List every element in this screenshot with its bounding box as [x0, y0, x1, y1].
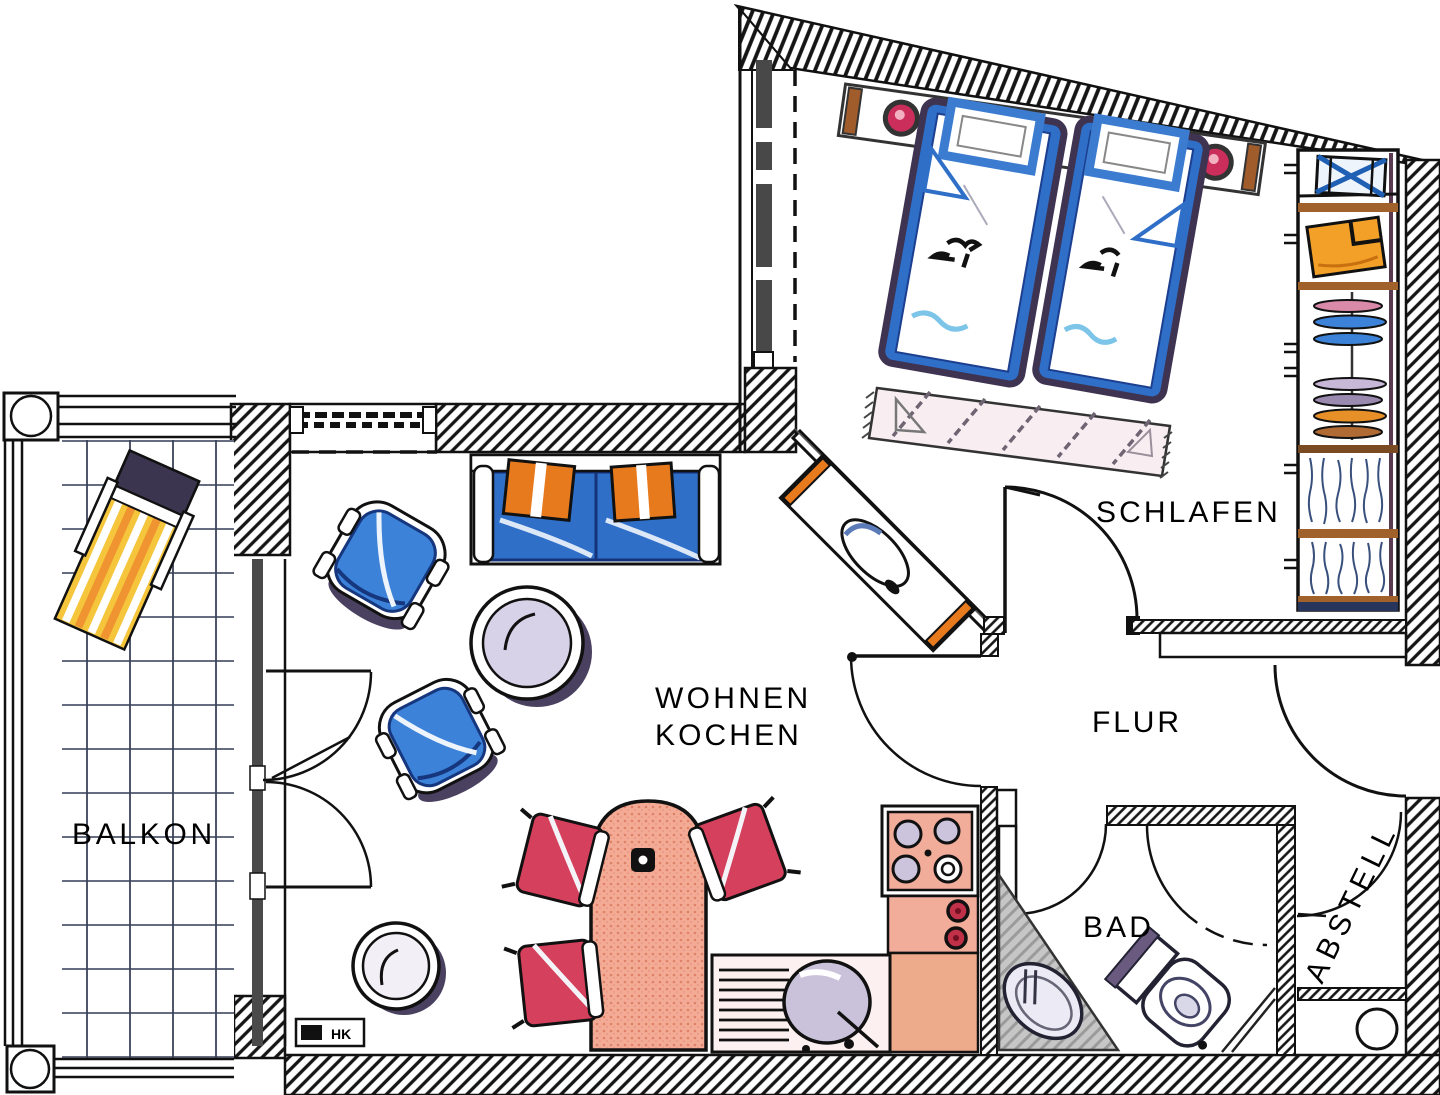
- svg-text:KOCHEN: KOCHEN: [655, 719, 802, 752]
- svg-text:BAD: BAD: [1083, 911, 1154, 944]
- svg-text:WOHNEN: WOHNEN: [655, 682, 811, 715]
- svg-text:FLUR: FLUR: [1092, 706, 1182, 739]
- svg-text:BALKON: BALKON: [72, 818, 216, 851]
- svg-text:HK: HK: [331, 1026, 351, 1042]
- svg-text:SCHLAFEN: SCHLAFEN: [1096, 496, 1281, 529]
